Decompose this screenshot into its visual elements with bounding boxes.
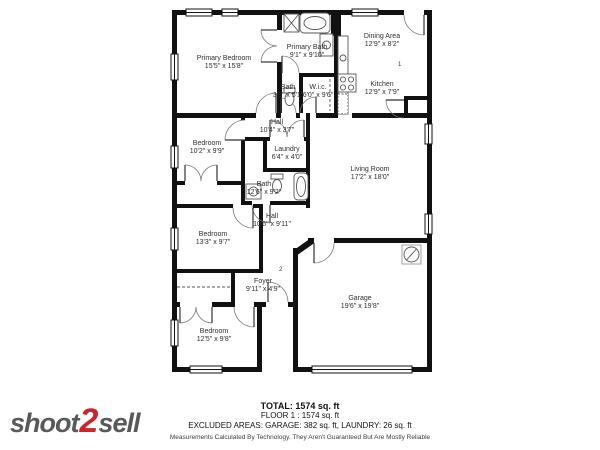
logo-word-shoot: shoot bbox=[10, 408, 79, 439]
room-label-dining-area: Dining Area12'9" x 8'2" bbox=[364, 33, 400, 48]
marker-2: 2 bbox=[279, 267, 282, 273]
stove-icon bbox=[338, 74, 356, 92]
room-label-foyer: Foyer9'11" x 4'9" bbox=[246, 278, 280, 293]
logo-word-sell: sell bbox=[98, 408, 139, 439]
bathtub-icon bbox=[300, 13, 330, 33]
floor-plan-page: Primary Bedroom15'5" x 15'8" Primary Bat… bbox=[0, 0, 600, 450]
room-label-kitchen: Kitchen12'9" x 7'9" bbox=[365, 81, 400, 96]
room-label-bedroom-2: Bedroom10'2" x 9'9" bbox=[190, 140, 225, 155]
room-label-hall-upper: Hall10'4" x 3'7" bbox=[260, 119, 295, 134]
room-label-living-room: Living Room17'2" x 18'0" bbox=[351, 166, 390, 181]
room-label-primary-bath: Primary Bath9'1" x 9'10" bbox=[287, 44, 327, 59]
room-label-laundry: Laundry6'4" x 4'0" bbox=[272, 146, 303, 161]
room-label-bedroom-3: Bedroom13'3" x 9'7" bbox=[196, 231, 231, 246]
room-label-primary-bedroom: Primary Bedroom15'5" x 15'8" bbox=[197, 55, 251, 70]
room-label-hall-lower: Hall10'6" x 9'11" bbox=[253, 213, 291, 228]
water-heater-icon bbox=[402, 245, 421, 264]
logo-digit-2: 2 bbox=[79, 402, 99, 441]
room-label-bath: Bath3'9" x 5'1" bbox=[273, 84, 304, 99]
room-label-garage: Garage19'6" x 19'8" bbox=[341, 295, 379, 310]
room-label-bath-2: Bath12'6" x 9'2" bbox=[247, 181, 282, 196]
shower-icon bbox=[284, 14, 299, 32]
shoot2sell-logo: shoot2sell bbox=[10, 402, 139, 441]
marker-1: 1 bbox=[398, 62, 401, 68]
bathtub-2-icon bbox=[294, 173, 308, 200]
room-label-bedroom-4: Bedroom12'5" x 9'8" bbox=[197, 328, 232, 343]
room-label-wic: W.i.c.6'0" x 9'6" bbox=[303, 84, 334, 99]
floor-plan-drawing bbox=[0, 0, 600, 450]
